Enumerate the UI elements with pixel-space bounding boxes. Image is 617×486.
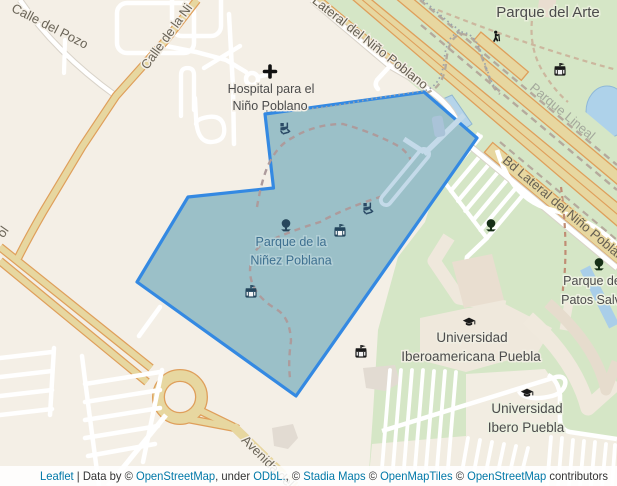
svg-text:Hospital para el: Hospital para el	[228, 82, 315, 96]
svg-text:Parque de la: Parque de la	[256, 235, 327, 249]
svg-text:Universidad: Universidad	[491, 401, 562, 416]
svg-text:Niñez Poblana: Niñez Poblana	[250, 254, 331, 268]
svg-text:Parque de: Parque de	[563, 274, 617, 288]
svg-text:Iberoamericana Puebla: Iberoamericana Puebla	[401, 349, 541, 364]
svg-text:Universidad: Universidad	[436, 330, 507, 345]
svg-text:Niño Poblano: Niño Poblano	[232, 99, 307, 113]
svg-text:Parque del Arte: Parque del Arte	[496, 4, 599, 21]
svg-text:Ibero Puebla: Ibero Puebla	[488, 420, 565, 435]
svg-text:Leaflet | Data by © OpenStreet: Leaflet | Data by © OpenStreetMap, under…	[40, 469, 608, 483]
svg-text:Patos Salv: Patos Salv	[561, 293, 617, 307]
